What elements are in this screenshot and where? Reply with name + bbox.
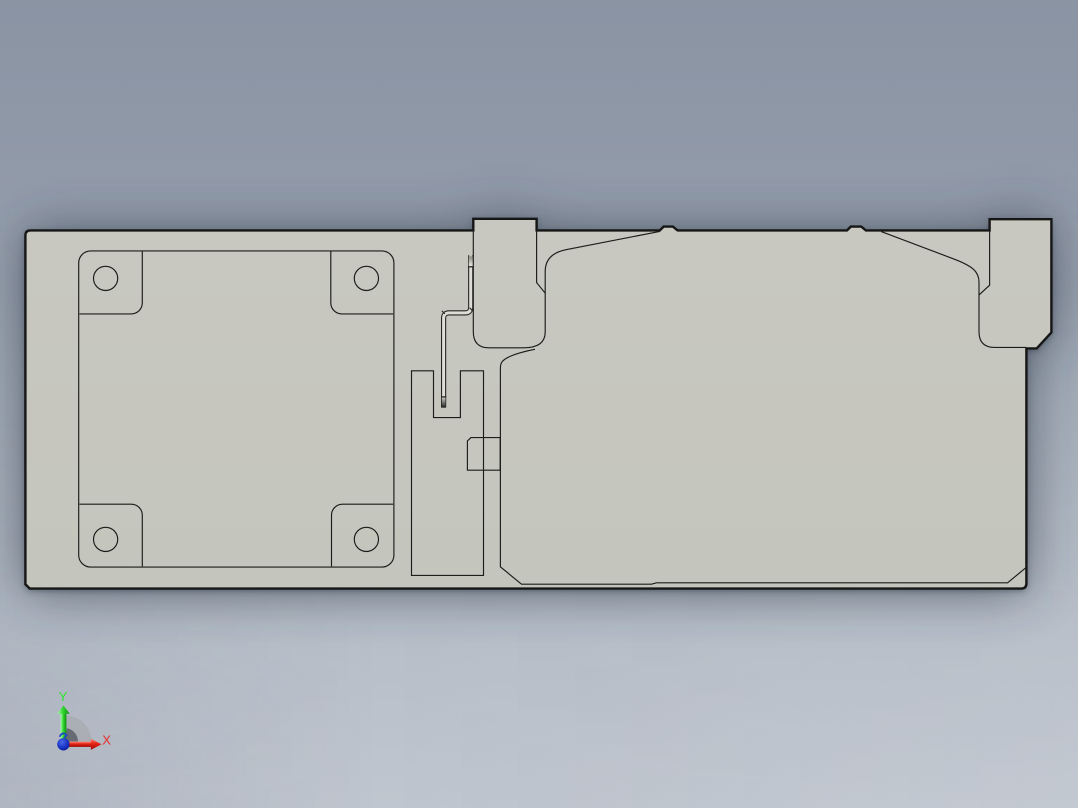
svg-text:X: X — [102, 733, 111, 748]
svg-text:Y: Y — [59, 689, 68, 704]
